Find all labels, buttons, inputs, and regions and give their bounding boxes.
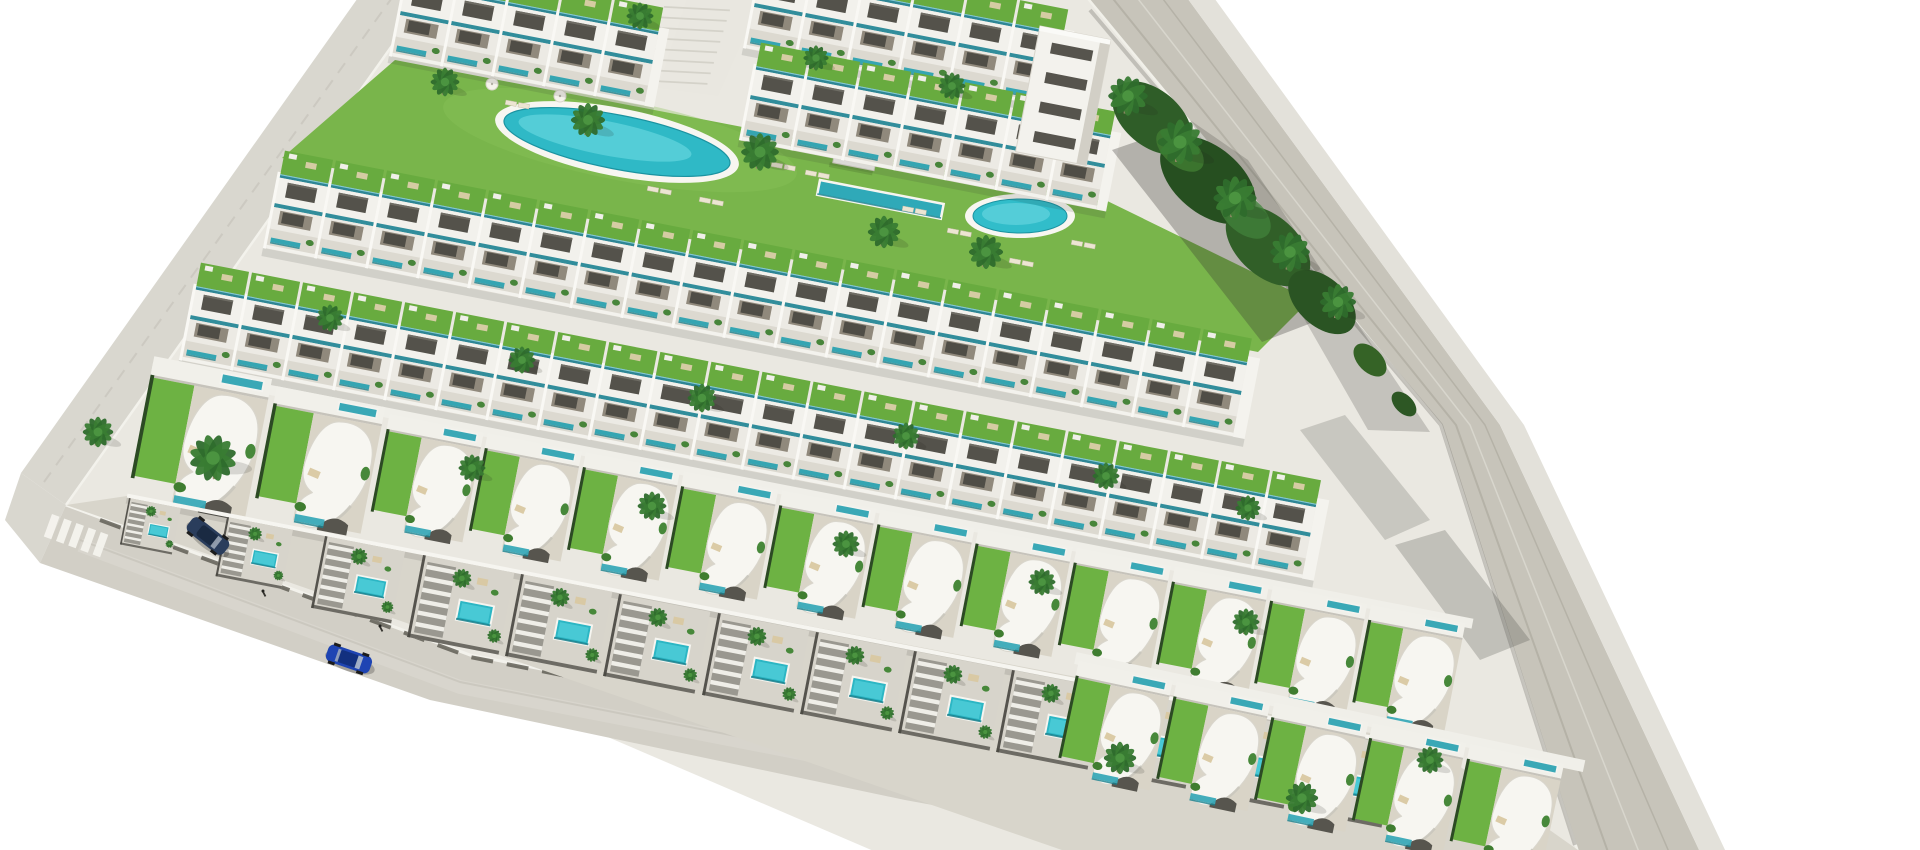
scene-svg (0, 0, 1920, 850)
round-pool-shallow (982, 203, 1050, 225)
render-image (0, 0, 1920, 850)
